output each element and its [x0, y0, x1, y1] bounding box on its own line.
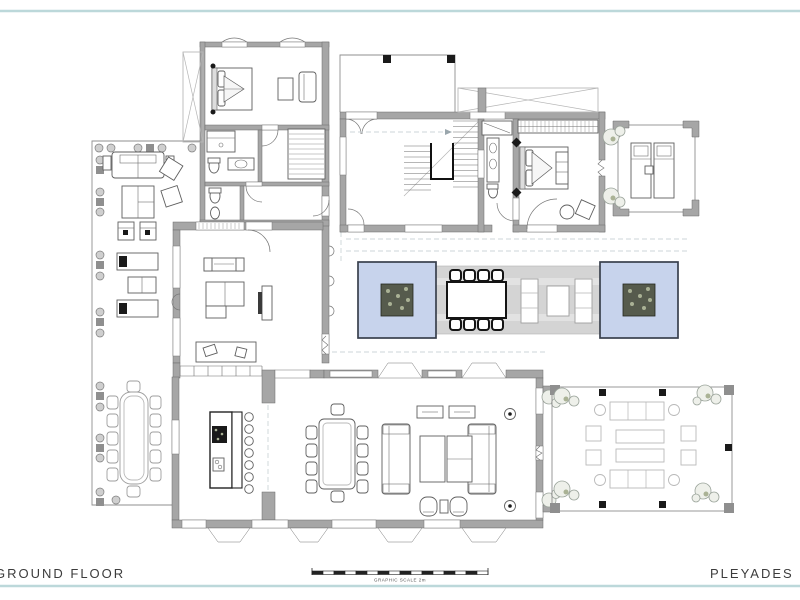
terrace-dining-set-icon [107, 381, 161, 497]
patio [358, 262, 678, 338]
stair-bathroom [478, 119, 515, 232]
floor-label: GROUND FLOOR [0, 566, 125, 581]
terrace-square-table-icon [122, 186, 154, 218]
wc-fixtures [209, 188, 221, 219]
glass-wall [173, 363, 262, 378]
console-table-icon [204, 258, 244, 271]
terrace-columns-top [95, 144, 196, 152]
lower-terrace [550, 385, 734, 513]
upper-terrace [603, 121, 699, 216]
entrance-porch [340, 55, 455, 134]
nightstand-icon [278, 78, 293, 100]
sofa-group-icon [382, 406, 516, 516]
terrace-loungers-icon [117, 253, 158, 317]
side-table-chair-icon [560, 200, 595, 220]
patio-loungers-icon [521, 279, 592, 323]
kitchen [172, 363, 275, 520]
staircase-icon [350, 121, 479, 196]
armchair-icon [299, 72, 316, 102]
upper-canopy-icon [458, 88, 598, 112]
drawing-sheet: GROUND FLOOR PLEYADES PLOT 1 GRAPHIC SCA… [0, 0, 800, 600]
sun-loungers-icon [631, 143, 674, 198]
dressing-closet-icon [288, 129, 325, 179]
tv-unit-icon [258, 286, 272, 320]
title-block: GROUND FLOOR PLEYADES PLOT 1 GRAPHIC SCA… [0, 566, 800, 583]
bar-stools-icon [245, 413, 254, 494]
floor-plan-drawing: GROUND FLOOR PLEYADES PLOT 1 GRAPHIC SCA… [0, 0, 800, 600]
bench-icon [556, 152, 568, 184]
kitchen-island-icon [210, 412, 242, 488]
bed-icon [211, 64, 253, 115]
sectional-sofa-icon [206, 282, 244, 318]
desk-icon [196, 342, 256, 362]
dining-set-icon [306, 404, 368, 502]
water-feature-right [600, 262, 678, 338]
corner-plants-icon [554, 385, 721, 502]
left-terrace [92, 141, 203, 506]
graphic-scale-bar [312, 568, 488, 575]
master-bath [207, 131, 254, 173]
family-room [172, 222, 334, 363]
terrace-chair-pair-icon [118, 222, 156, 240]
wardrobe-icon [518, 120, 598, 133]
scale-caption: GRAPHIC SCALE 2m [374, 578, 426, 583]
master-suite [183, 38, 329, 363]
outdoor-lounge-set-icon [586, 402, 696, 488]
project-label: PLEYADES PLOT 1 [710, 566, 800, 581]
plants-icon [603, 126, 625, 207]
water-feature-left [358, 262, 436, 338]
